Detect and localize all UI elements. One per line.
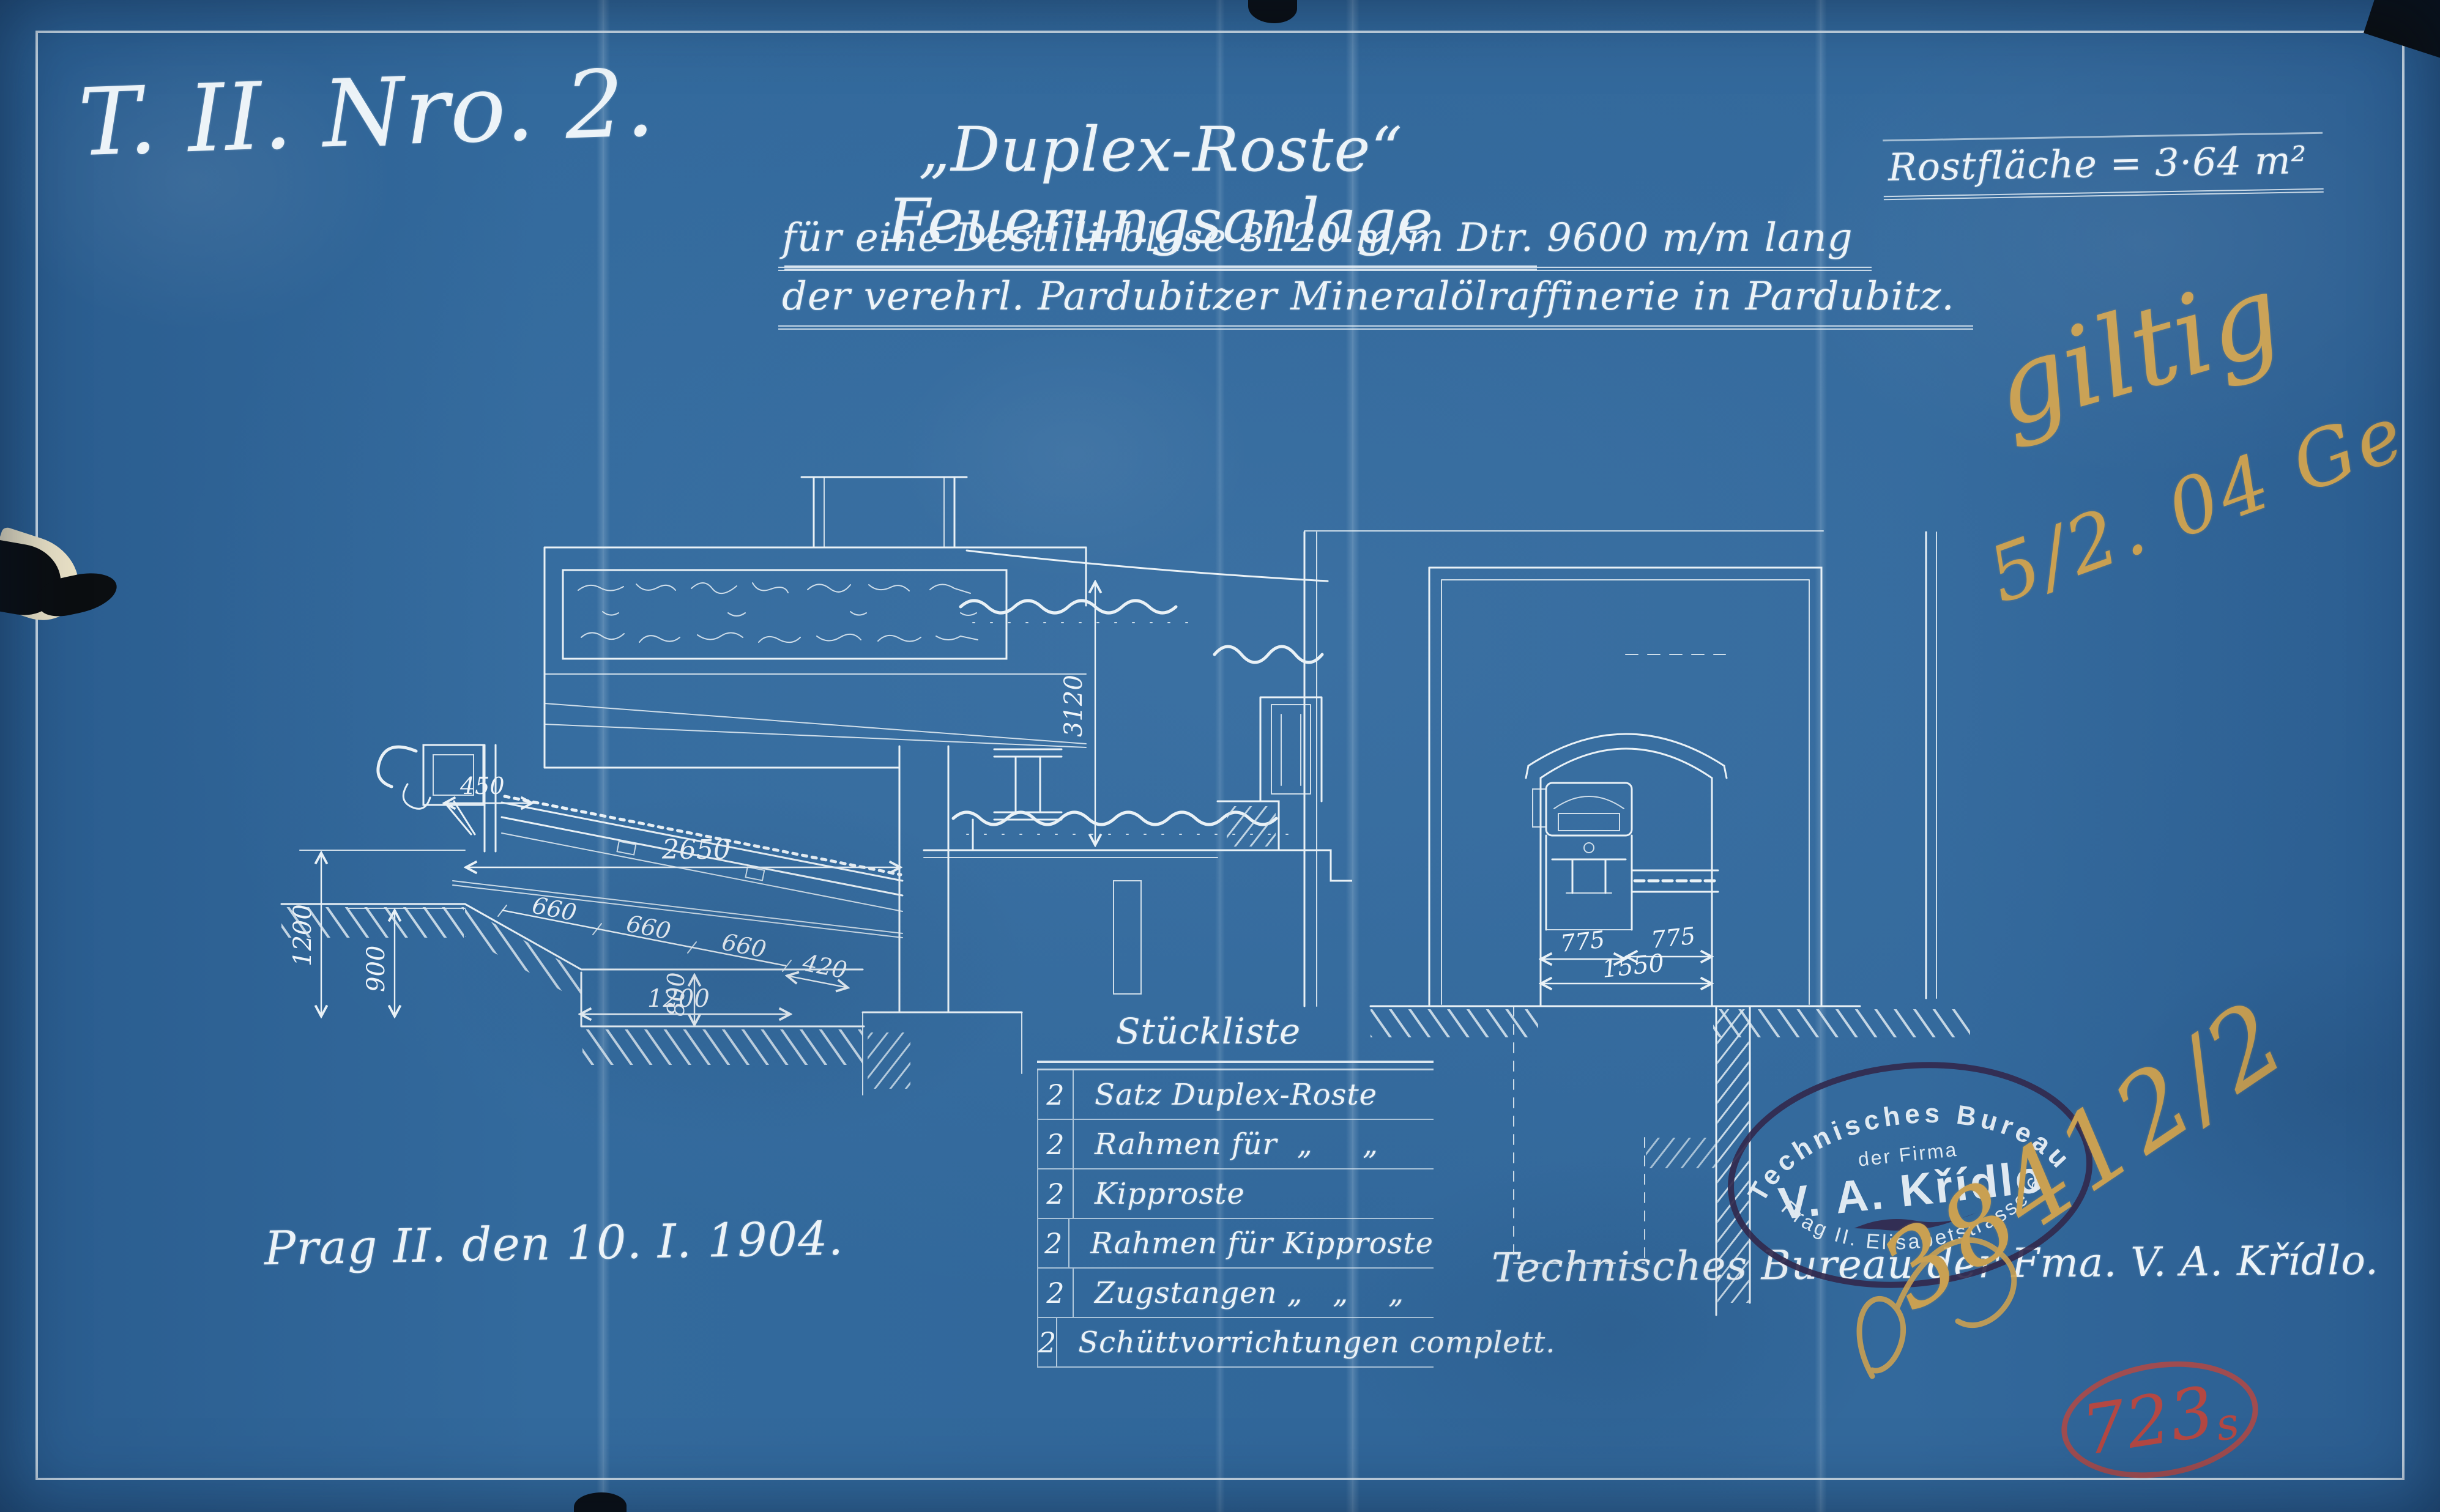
bottom-edge-nick [574,1492,627,1512]
parts-qty: 2 [1038,1318,1057,1366]
subtitle-line1: für eine Destillirblase 3120 m/m Dtr. 96… [778,215,1872,271]
flue-taper [545,703,1086,768]
torn-spot-dark [35,567,121,621]
registry-stamp-number: 723 [2077,1372,2220,1471]
svg-text:660: 660 [720,928,768,963]
parts-qty: 2 [1038,1120,1074,1168]
parts-qty: 2 [1038,1169,1074,1218]
subtitle-line2: der verehrl. Pardubitzer Mineralölraffin… [778,274,1973,330]
parts-row: 2 Schüttvorrichtungen complett. [1037,1318,1434,1368]
torn-edge-hole-dark [0,538,67,621]
approval-handwriting: giltig [1979,250,2294,453]
svg-text:775: 775 [1559,926,1606,957]
parts-list: Stückliste 2 Satz Duplex-Roste 2 Rahmen … [1037,1010,1434,1368]
fire-door [1533,783,1632,930]
parts-qty: 2 [1038,1219,1069,1267]
parts-list-rule [1037,1061,1434,1070]
pencil-signature-scrawl [1829,1138,2086,1395]
parts-name: Zugstangen „ „ „ [1074,1276,1404,1310]
top-edge-nick [1248,0,1297,23]
parts-list-title: Stückliste [1074,1010,1343,1052]
parts-name: Rahmen für „ „ [1074,1127,1378,1162]
parts-name: Rahmen für Kipproste [1069,1226,1434,1261]
svg-text:660: 660 [530,892,579,927]
svg-text:420: 420 [800,949,849,984]
svg-text:3120: 3120 [1060,675,1088,737]
svg-text:1550: 1550 [1601,949,1665,984]
drawing-number: T. II. Nro. 2. [76,49,656,177]
building-walls [1304,531,1936,1006]
svg-text:2650: 2650 [661,834,731,865]
flue-uptake [802,477,967,547]
parts-qty: 2 [1038,1070,1074,1119]
svg-text:450: 450 [459,773,505,799]
dim-3120: 3120 [1060,584,1095,843]
svg-text:1200: 1200 [647,985,710,1013]
place-date-line: Prag II. den 10. I. 1904. [264,1211,844,1276]
parts-qty: 2 [1038,1269,1074,1317]
parts-name: Kipproste [1074,1177,1245,1211]
parts-row: 2 Rahmen für Kipproste [1037,1219,1434,1269]
svg-text:660: 660 [624,910,673,945]
svg-text:775: 775 [1650,922,1697,954]
torn-edge-hole [0,526,91,630]
parts-name: Schüttvorrichtungen complett. [1057,1325,1555,1360]
corner-clip-top-right [2364,0,2440,61]
parts-name: Satz Duplex-Roste [1074,1078,1377,1112]
parts-row: 2 Kipproste [1037,1169,1434,1219]
firebox-pier [863,746,1022,1095]
front-dims: 775 775 1550 [1543,922,1709,984]
parts-row: 2 Rahmen für „ „ [1037,1120,1434,1169]
parts-row: 2 Satz Duplex-Roste [1037,1070,1434,1120]
parts-row: 2 Zugstangen „ „ „ [1037,1269,1434,1318]
svg-text:900: 900 [362,946,390,992]
masonry-chamber [545,547,1086,768]
ibeam-column [973,749,1086,850]
grate-bar-ends [1632,870,1718,892]
grate-area-note: Rostfläche = 3·64 m² [1883,132,2323,201]
blueprint-sheet: T. II. Nro. 2. „Duplex-Roste“ Feuerungsa… [0,0,2440,1512]
setting-face [1429,568,1821,1006]
rubble-fill [578,583,978,642]
